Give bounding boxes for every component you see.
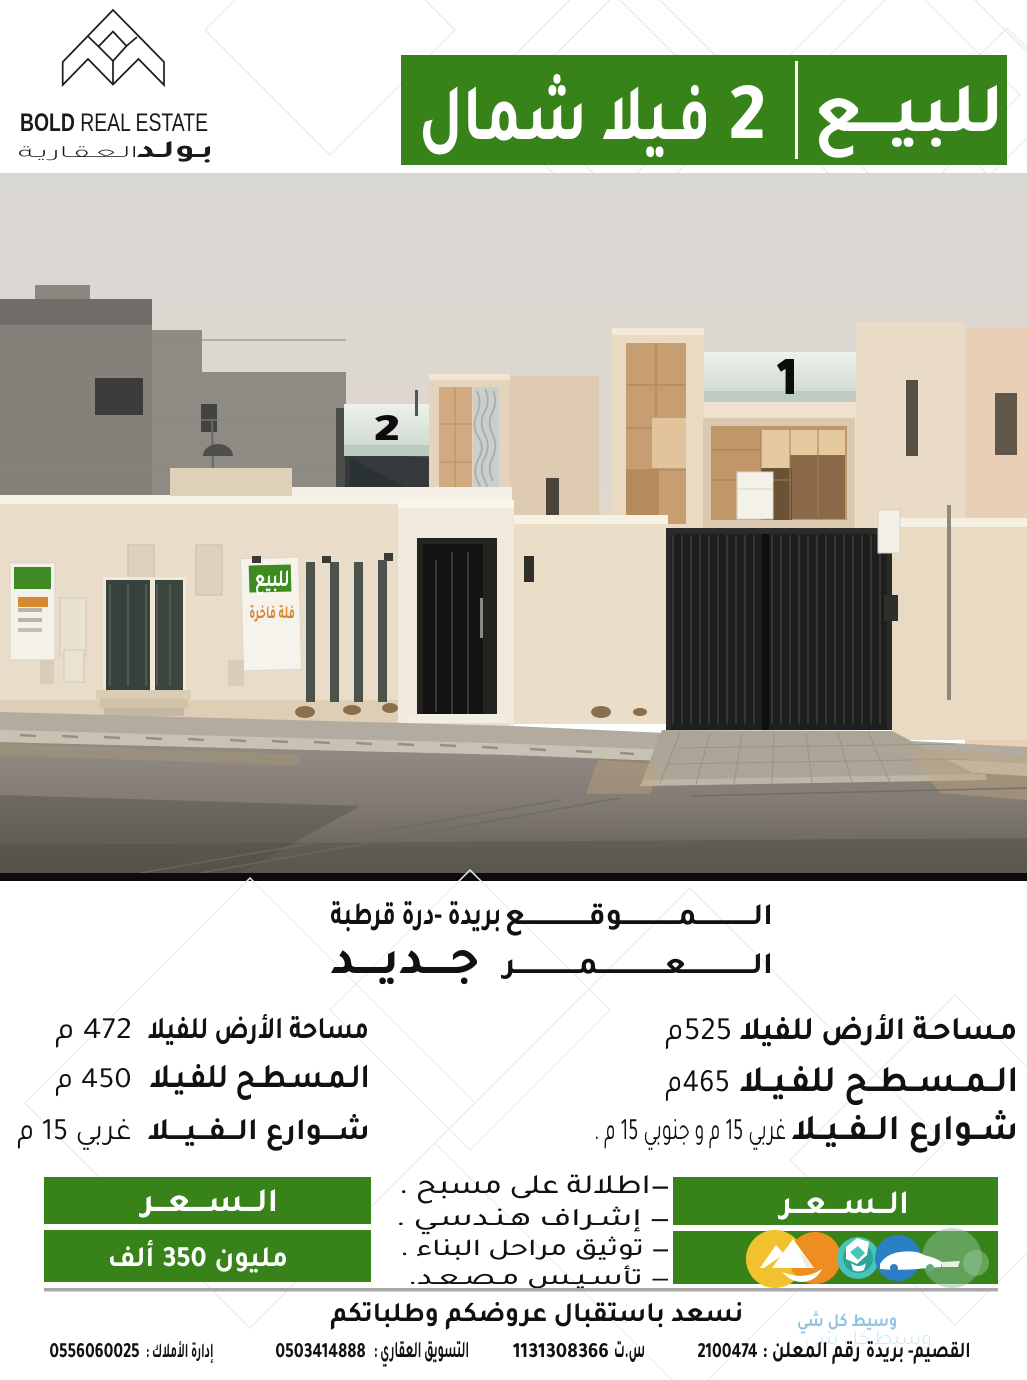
svg-text:BOLD REAL ESTATE: BOLD REAL ESTATE bbox=[20, 109, 208, 137]
